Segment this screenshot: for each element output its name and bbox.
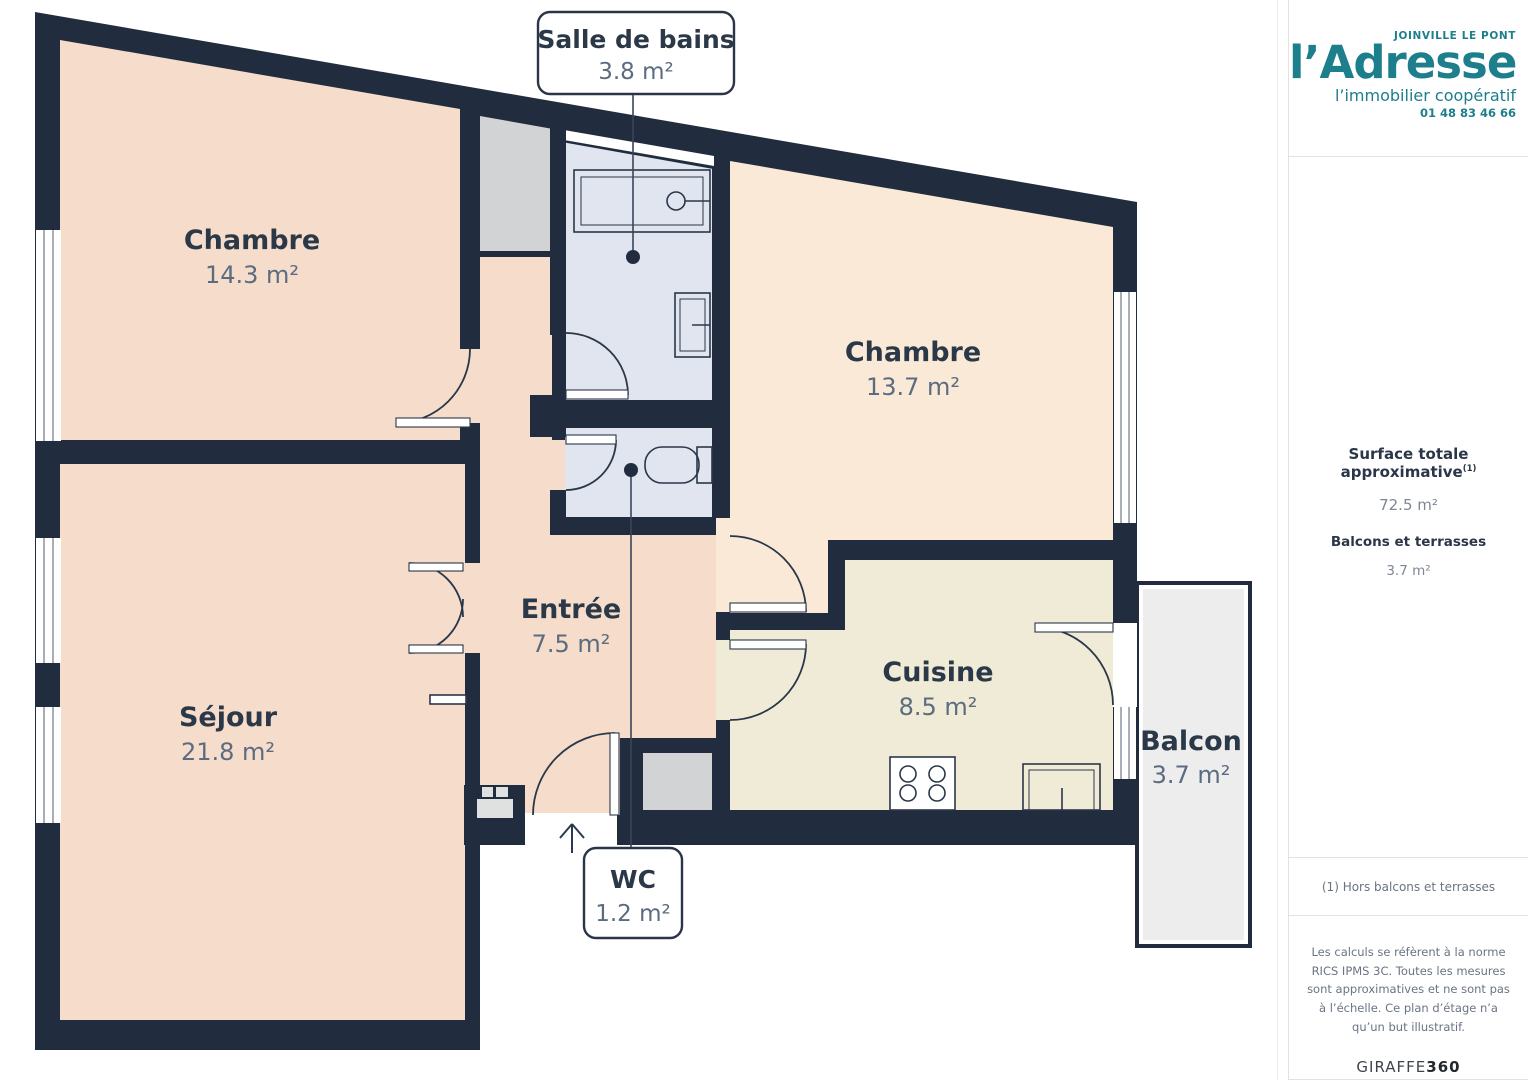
hall-cabinet [620, 738, 716, 815]
door-opening [463, 563, 482, 653]
door-opening [1113, 623, 1137, 707]
surface-total-value: 72.5 m² [1289, 496, 1528, 514]
floorplan-canvas: Salle de bains 3.8 m² WC 1.2 m² Chambre … [0, 0, 1288, 1080]
legal-block: Les calculs se réfèrent à la norme RICS … [1289, 915, 1528, 1074]
label-entree: Entrée [521, 594, 622, 625]
giraffe360-logo: GIRAFFE360 [1305, 1058, 1512, 1076]
canvas-edge-line [1277, 0, 1278, 1080]
legal-text: Les calculs se réfèrent à la norme RICS … [1305, 943, 1512, 1036]
info-sidebar: JOINVILLE LE PONT l’Adresse l’immobilier… [1288, 0, 1528, 1080]
window [1114, 292, 1136, 523]
window [36, 230, 61, 441]
leader-dot [624, 463, 638, 477]
label-chambre2: Chambre [845, 337, 981, 368]
balconies-value: 3.7 m² [1289, 563, 1528, 579]
agency-brand: l’Adresse [1289, 42, 1516, 85]
hall-closet [480, 116, 553, 251]
callout-salle-de-bains: Salle de bains 3.8 m² [537, 12, 734, 94]
window [1114, 707, 1136, 779]
window [36, 707, 61, 823]
surface-note-marker: (1) [1463, 464, 1477, 474]
entrance-opening [523, 813, 617, 847]
leader-dot [626, 250, 640, 264]
area-chambre2: 13.7 m² [866, 373, 960, 401]
callout-area: 3.8 m² [598, 59, 674, 85]
giraffe-360: 360 [1426, 1058, 1460, 1076]
giraffe-text: GIRAFFE [1356, 1058, 1426, 1076]
area-balcon: 3.7 m² [1152, 761, 1231, 789]
agency-logo: JOINVILLE LE PONT l’Adresse l’immobilier… [1289, 0, 1528, 157]
label-balcon: Balcon [1140, 726, 1242, 757]
callout-title: Salle de bains [537, 25, 734, 54]
radiator [430, 695, 466, 704]
door-opening [716, 640, 730, 720]
callout-wc: WC 1.2 m² [584, 848, 682, 938]
agency-phone: 01 48 83 46 66 [1289, 106, 1516, 120]
label-cuisine: Cuisine [882, 657, 993, 688]
area-sejour: 21.8 m² [181, 738, 275, 766]
stove [890, 757, 955, 810]
area-chambre1: 14.3 m² [205, 261, 299, 289]
surface-total-text: Surface totale approximative [1341, 445, 1469, 481]
label-chambre1: Chambre [184, 225, 320, 256]
area-entree: 7.5 m² [532, 630, 611, 658]
callout-area: 1.2 m² [595, 901, 671, 927]
balconies-label: Balcons et terrasses [1289, 534, 1528, 550]
callout-title: WC [610, 865, 656, 894]
door-opening [716, 518, 730, 612]
label-sejour: Séjour [179, 702, 278, 733]
room-bathroom [566, 142, 712, 400]
footnote: (1) Hors balcons et terrasses [1289, 857, 1528, 916]
surface-summary: Surface totale approximative(1) 72.5 m² … [1289, 445, 1528, 579]
surface-total-label: Surface totale approximative(1) [1289, 445, 1528, 481]
area-cuisine: 8.5 m² [899, 693, 978, 721]
floorplan-page: { "plan": { "rooms": [ {"id": "chambre1"… [0, 0, 1528, 1080]
window [36, 538, 61, 663]
entrance-radiator [464, 785, 525, 845]
